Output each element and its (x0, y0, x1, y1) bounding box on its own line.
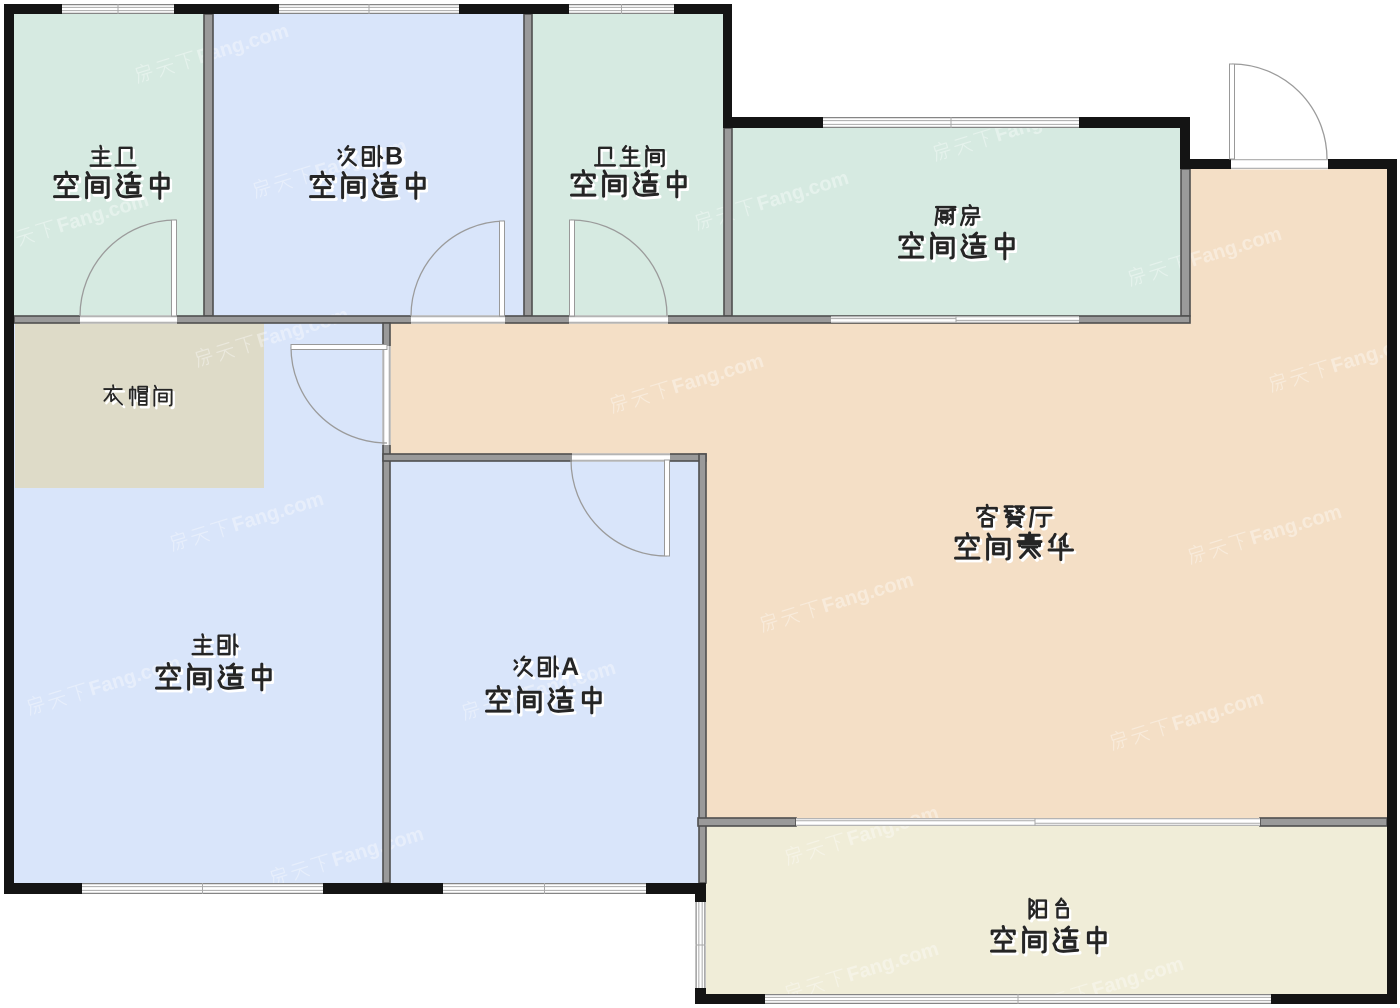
svg-text:B: B (385, 143, 403, 171)
svg-text:A: A (561, 653, 579, 681)
